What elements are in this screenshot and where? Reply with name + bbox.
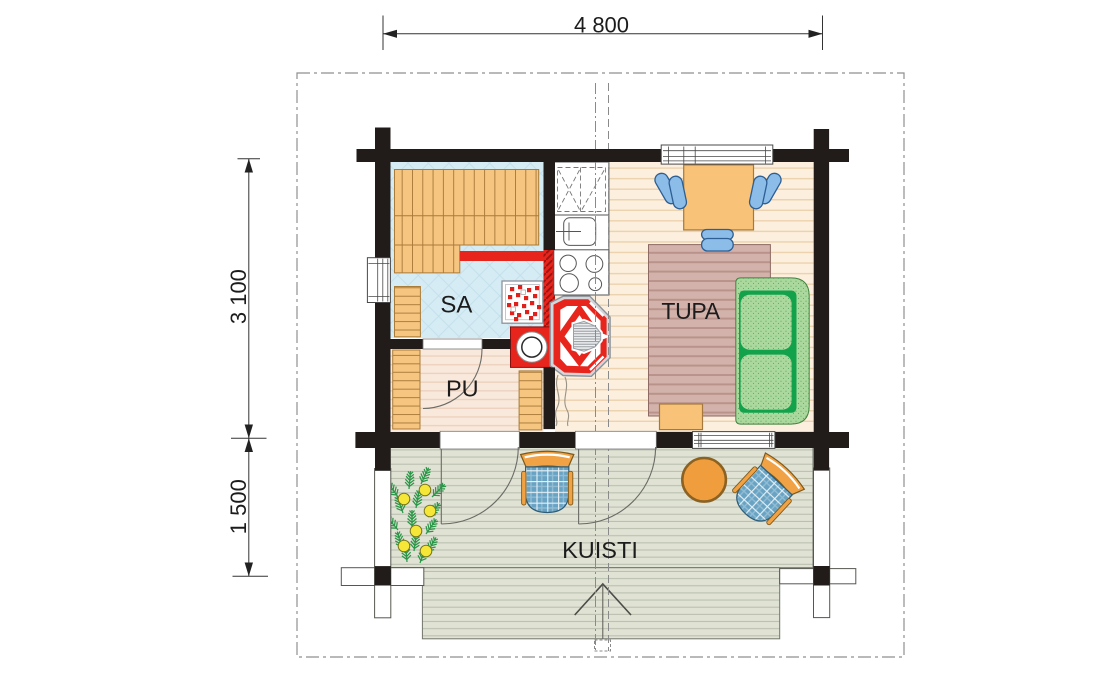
- svg-text:SA: SA: [440, 291, 472, 318]
- svg-text:KUISTI: KUISTI: [562, 537, 638, 563]
- svg-text:4 800: 4 800: [574, 13, 629, 38]
- svg-text:PU: PU: [446, 375, 479, 401]
- svg-text:1 500: 1 500: [226, 479, 251, 534]
- svg-text:TUPA: TUPA: [661, 298, 720, 324]
- svg-text:3 100: 3 100: [226, 269, 251, 324]
